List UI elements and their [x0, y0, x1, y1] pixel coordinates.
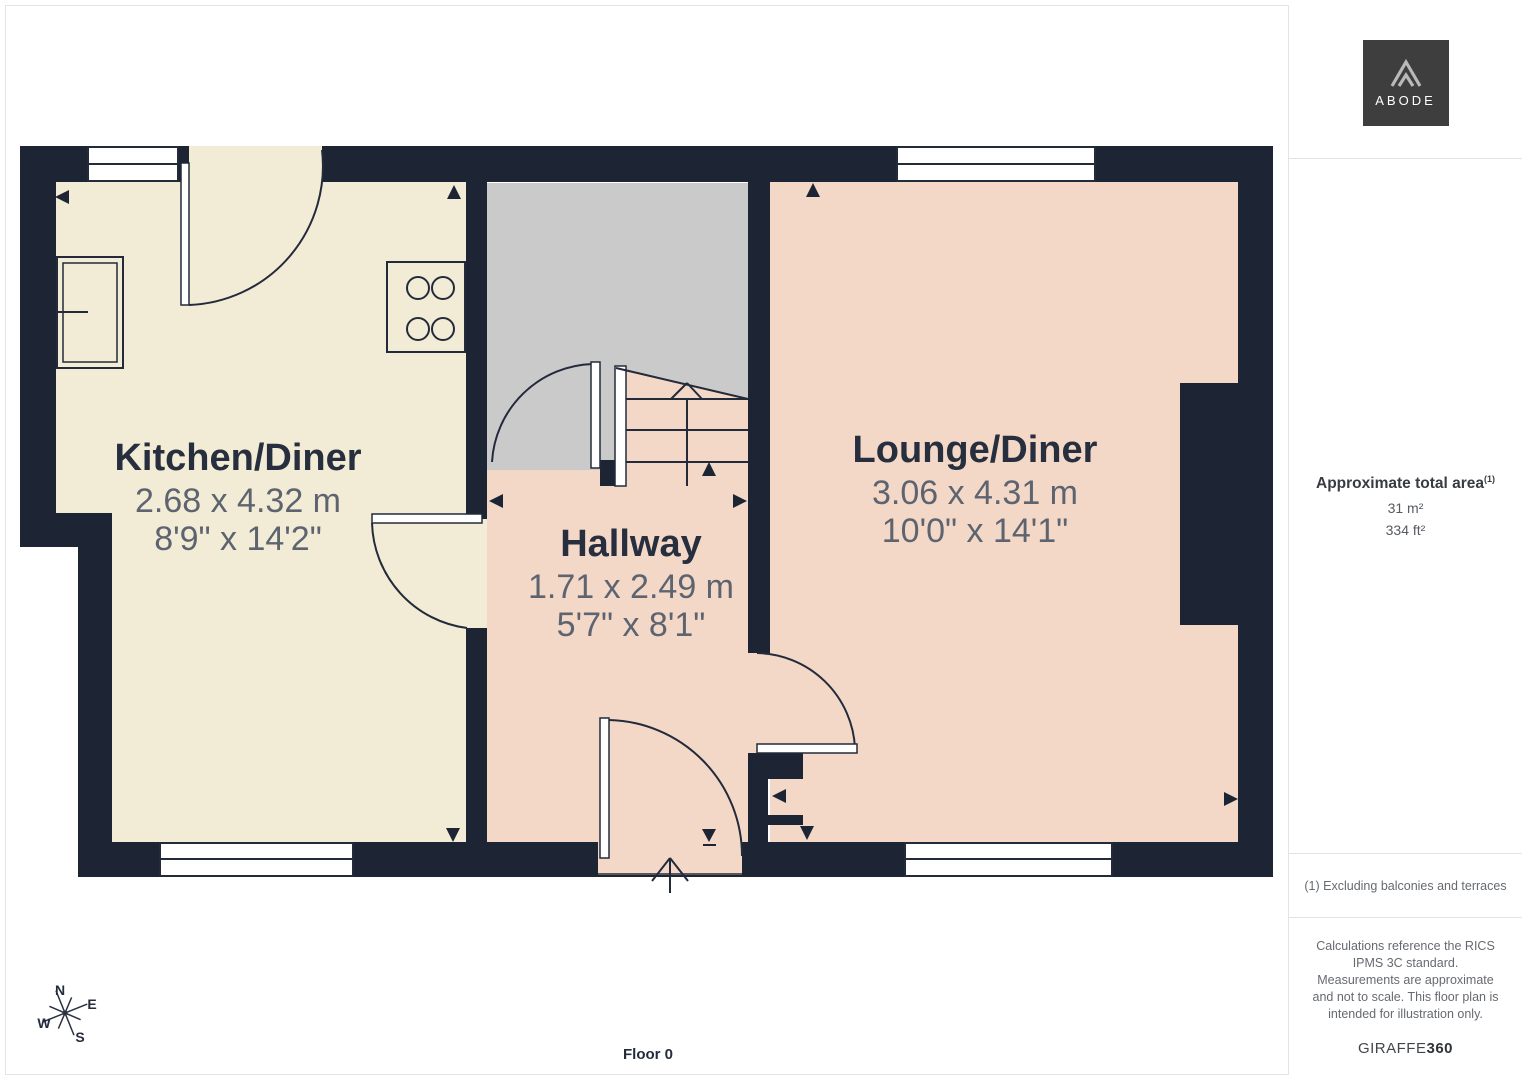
compass-rose: N E W S — [34, 982, 97, 1045]
footnote-section: (1) Excluding balconies and terraces — [1289, 853, 1522, 917]
lounge-dim-metric: 3.06 x 4.31 m — [853, 474, 1098, 513]
giraffe360-brand: GIRAFFE360 — [1289, 1040, 1522, 1057]
door-leaf-kitchen-hallway — [372, 514, 482, 523]
wall-left-upper — [20, 146, 56, 547]
hallway-label: Hallway 1.71 x 2.49 m 5'7" x 8'1" — [528, 522, 734, 645]
total-area-superscript: (1) — [1484, 474, 1495, 484]
wall-stair-door-stub — [600, 460, 616, 486]
compass-label-n: N — [55, 982, 65, 998]
lounge-name: Lounge/Diner — [853, 428, 1098, 474]
giraffe360-brand-name: GIRAFFE — [1358, 1040, 1427, 1057]
compass-label-w: W — [37, 1015, 51, 1031]
door-leaf-stairs — [591, 362, 600, 468]
door-leaf-front — [600, 718, 609, 858]
wall-lounge-return-upper — [768, 753, 803, 779]
hallway-name: Hallway — [528, 522, 734, 568]
lounge-label: Lounge/Diner 3.06 x 4.31 m 10'0" x 14'1" — [853, 428, 1098, 551]
disclaimer-section: Calculations reference the RICS IPMS 3C … — [1289, 917, 1522, 1075]
total-area-title: Approximate total area(1) — [1316, 474, 1495, 493]
total-area-section: Approximate total area(1) 31 m² 334 ft² — [1289, 158, 1522, 853]
opening-kitchen-hallway — [466, 519, 487, 628]
total-area-title-text: Approximate total area — [1316, 476, 1484, 493]
compass-center-dot — [62, 1010, 69, 1017]
total-area-ft2: 334 ft² — [1386, 522, 1426, 538]
opening-kitchen-top-door — [189, 146, 322, 182]
compass-label-e: E — [87, 996, 96, 1012]
wall-right — [1238, 146, 1273, 877]
disclaimer-text: Calculations reference the RICS IPMS 3C … — [1312, 938, 1500, 1022]
floor-label: Floor 0 — [623, 1046, 673, 1063]
chimney-breast — [1180, 383, 1238, 625]
compass-label-s: S — [75, 1029, 84, 1045]
wall-hall-lounge-stub — [748, 753, 768, 877]
total-area-m2: 31 m² — [1388, 500, 1424, 516]
opening-hallway-lounge — [748, 653, 770, 753]
wall-left-lower — [78, 513, 112, 877]
abode-logo-text: ABODE — [1375, 93, 1436, 108]
wall-lounge-return-lower — [768, 815, 803, 825]
abode-logo-icon — [1386, 58, 1426, 88]
kitchen-label: Kitchen/Diner 2.68 x 4.32 m 8'9" x 14'2" — [114, 436, 361, 559]
footnote-text: (1) Excluding balconies and terraces — [1304, 879, 1506, 893]
info-sidebar: ABODE Approximate total area(1) 31 m² 33… — [1288, 5, 1522, 1075]
stair-stringer — [615, 366, 626, 486]
floorplan-page: N E W S Kitchen/Diner 2.68 x 4.32 m 8'9"… — [0, 0, 1527, 1080]
kitchen-dim-metric: 2.68 x 4.32 m — [114, 482, 361, 521]
lounge-dim-imperial: 10'0" x 14'1" — [853, 512, 1098, 551]
logo-section: ABODE — [1289, 5, 1522, 158]
hallway-dim-imperial: 5'7" x 8'1" — [528, 606, 734, 645]
wall-kitchen-right-lower — [466, 628, 487, 842]
wall-kitchen-right-upper — [466, 146, 487, 519]
abode-logo: ABODE — [1363, 40, 1449, 126]
hallway-dim-metric: 1.71 x 2.49 m — [528, 568, 734, 607]
door-leaf-kitchen-top — [181, 163, 189, 305]
kitchen-dim-imperial: 8'9" x 14'2" — [114, 520, 361, 559]
giraffe360-brand-suffix: 360 — [1426, 1040, 1453, 1057]
wall-hall-lounge — [748, 146, 770, 653]
kitchen-name: Kitchen/Diner — [114, 436, 361, 482]
door-leaf-hallway-lounge — [757, 744, 857, 753]
